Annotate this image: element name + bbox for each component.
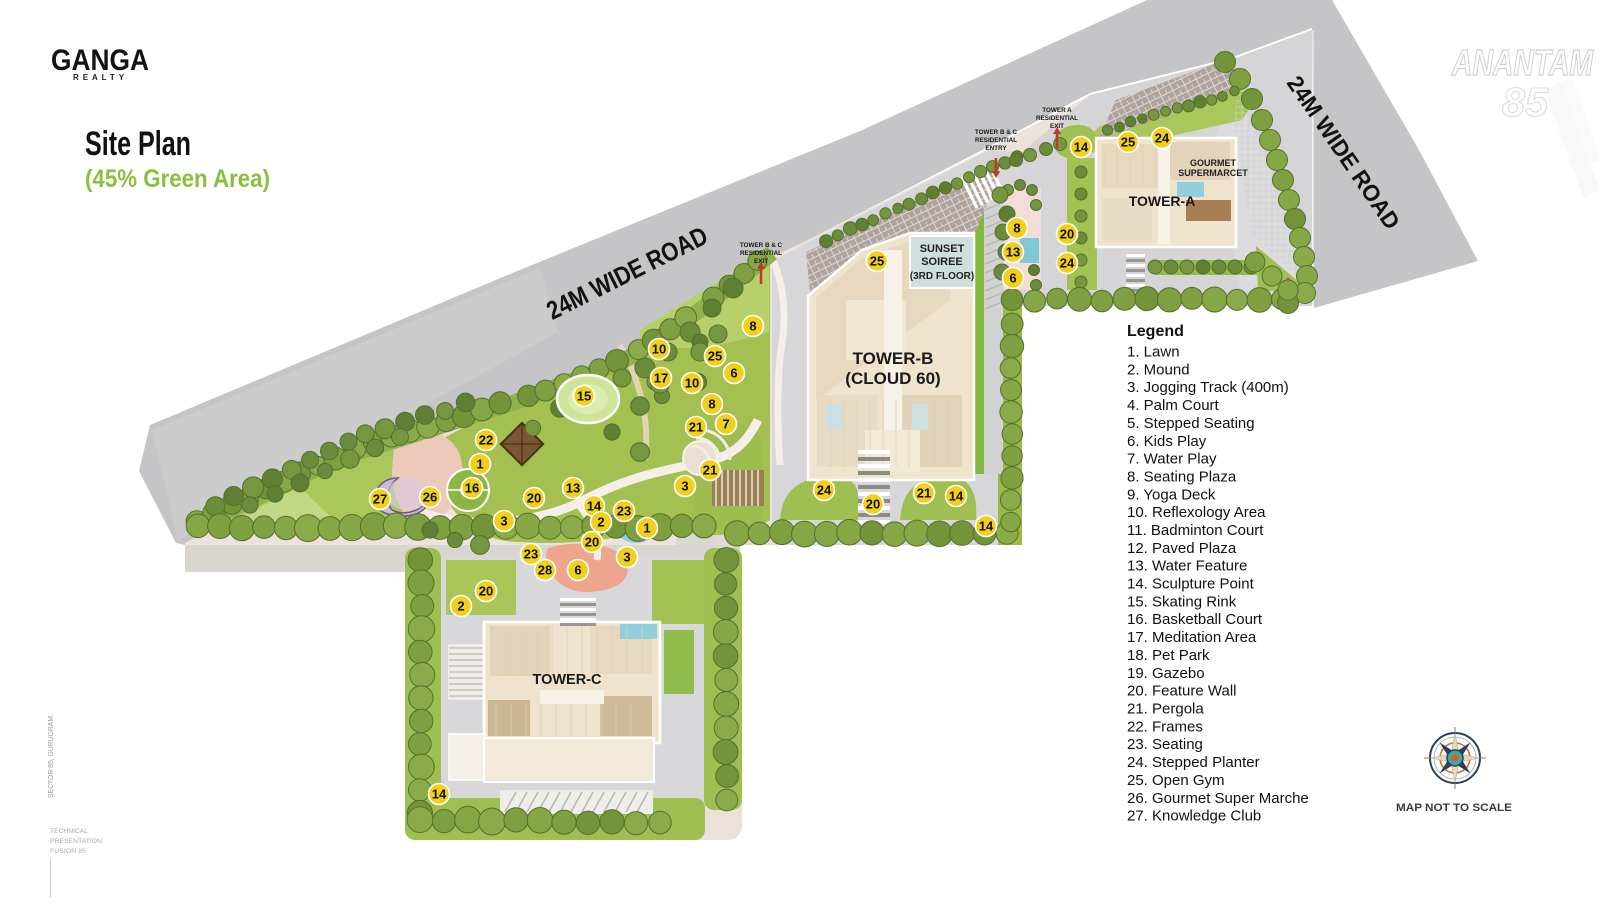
svg-text:Site Plan: Site Plan bbox=[85, 125, 191, 163]
svg-text:SOIREE: SOIREE bbox=[921, 256, 963, 268]
svg-text:TOWER A: TOWER A bbox=[1042, 107, 1072, 114]
svg-text:TOWER B & C: TOWER B & C bbox=[740, 242, 783, 249]
svg-text:8: 8 bbox=[708, 397, 715, 412]
svg-text:5. Stepped Seating: 5. Stepped Seating bbox=[1127, 415, 1255, 432]
svg-text:SUPERMARCET: SUPERMARCET bbox=[1178, 168, 1248, 178]
svg-text:6. Kids Play: 6. Kids Play bbox=[1127, 433, 1207, 450]
svg-text:14: 14 bbox=[1074, 140, 1089, 155]
svg-text:6: 6 bbox=[730, 366, 737, 381]
svg-text:MAP NOT TO SCALE: MAP NOT TO SCALE bbox=[1396, 802, 1512, 814]
svg-text:18. Pet Park: 18. Pet Park bbox=[1127, 647, 1210, 664]
svg-text:25: 25 bbox=[1121, 135, 1135, 150]
svg-text:8: 8 bbox=[749, 319, 756, 334]
svg-text:24: 24 bbox=[1060, 256, 1075, 271]
svg-text:17: 17 bbox=[654, 371, 668, 386]
svg-text:20: 20 bbox=[527, 491, 541, 506]
svg-text:8. Seating Plaza: 8. Seating Plaza bbox=[1127, 469, 1237, 486]
svg-text:15: 15 bbox=[577, 389, 591, 404]
svg-text:1: 1 bbox=[476, 457, 483, 472]
svg-text:19. Gazebo: 19. Gazebo bbox=[1127, 665, 1205, 682]
svg-text:TOWER B & C: TOWER B & C bbox=[975, 129, 1018, 136]
svg-text:9. Yoga Deck: 9. Yoga Deck bbox=[1127, 486, 1216, 503]
svg-text:12. Paved Plaza: 12. Paved Plaza bbox=[1127, 540, 1237, 557]
svg-text:23: 23 bbox=[617, 504, 631, 519]
svg-text:11. Badminton Court: 11. Badminton Court bbox=[1127, 522, 1264, 539]
svg-text:1. Lawn: 1. Lawn bbox=[1127, 344, 1180, 361]
svg-text:(CLOUD 60): (CLOUD 60) bbox=[845, 369, 940, 388]
svg-text:23: 23 bbox=[524, 547, 538, 562]
svg-text:15. Skating Rink: 15. Skating Rink bbox=[1127, 593, 1237, 610]
svg-text:7: 7 bbox=[722, 417, 729, 432]
svg-text:27: 27 bbox=[373, 492, 387, 507]
svg-text:14: 14 bbox=[979, 519, 994, 534]
svg-text:23. Seating: 23. Seating bbox=[1127, 736, 1203, 753]
svg-text:(45% Green Area): (45% Green Area) bbox=[85, 165, 270, 193]
svg-text:TECHNICAL: TECHNICAL bbox=[50, 829, 89, 835]
svg-text:24: 24 bbox=[1155, 131, 1170, 146]
svg-text:REALTY: REALTY bbox=[73, 73, 128, 82]
svg-text:20. Feature Wall: 20. Feature Wall bbox=[1127, 683, 1237, 700]
svg-text:FUSION 85: FUSION 85 bbox=[50, 849, 87, 855]
svg-text:24: 24 bbox=[817, 483, 832, 498]
svg-text:13: 13 bbox=[1006, 245, 1020, 260]
svg-text:21: 21 bbox=[703, 463, 717, 478]
svg-text:26. Gourmet Super Marche: 26. Gourmet Super Marche bbox=[1127, 790, 1309, 807]
svg-text:7. Water Play: 7. Water Play bbox=[1127, 451, 1217, 468]
svg-text:6: 6 bbox=[574, 563, 581, 578]
svg-text:16: 16 bbox=[465, 481, 479, 496]
svg-text:TOWER-B: TOWER-B bbox=[853, 349, 934, 368]
svg-text:21: 21 bbox=[689, 420, 703, 435]
svg-text:TOWER-C: TOWER-C bbox=[532, 672, 602, 688]
svg-text:13: 13 bbox=[566, 481, 580, 496]
svg-text:26: 26 bbox=[423, 490, 437, 505]
svg-text:25. Open Gym: 25. Open Gym bbox=[1127, 772, 1225, 789]
svg-text:20: 20 bbox=[585, 535, 599, 550]
svg-text:13. Water Feature: 13. Water Feature bbox=[1127, 558, 1247, 575]
svg-text:16. Basketball Court: 16. Basketball Court bbox=[1127, 611, 1263, 628]
svg-text:ANANTAM: ANANTAM bbox=[1451, 42, 1594, 83]
svg-text:6: 6 bbox=[1009, 271, 1016, 286]
svg-text:3: 3 bbox=[500, 514, 507, 529]
svg-text:21: 21 bbox=[917, 486, 931, 501]
svg-text:14: 14 bbox=[432, 787, 447, 802]
svg-text:20: 20 bbox=[1060, 227, 1074, 242]
svg-text:TOWER-A: TOWER-A bbox=[1129, 193, 1196, 209]
svg-text:3: 3 bbox=[681, 479, 688, 494]
svg-text:Legend: Legend bbox=[1127, 323, 1184, 340]
svg-text:22: 22 bbox=[479, 433, 493, 448]
svg-text:21. Pergola: 21. Pergola bbox=[1127, 701, 1204, 718]
svg-text:22. Frames: 22. Frames bbox=[1127, 718, 1203, 735]
svg-text:28: 28 bbox=[538, 563, 552, 578]
svg-text:RESIDENTIAL: RESIDENTIAL bbox=[975, 137, 1017, 144]
svg-text:85: 85 bbox=[1502, 79, 1549, 125]
svg-text:3. Jogging Track (400m): 3. Jogging Track (400m) bbox=[1127, 379, 1289, 396]
svg-text:2. Mound: 2. Mound bbox=[1127, 361, 1190, 378]
svg-text:17. Meditation Area: 17. Meditation Area bbox=[1127, 629, 1257, 646]
svg-text:24. Stepped Planter: 24. Stepped Planter bbox=[1127, 754, 1260, 771]
svg-text:20: 20 bbox=[866, 497, 880, 512]
svg-text:10. Reflexology Area: 10. Reflexology Area bbox=[1127, 504, 1266, 521]
svg-text:ENTRY: ENTRY bbox=[985, 145, 1007, 152]
svg-text:2: 2 bbox=[597, 515, 604, 530]
svg-text:14. Sculpture Point: 14. Sculpture Point bbox=[1127, 576, 1255, 593]
svg-text:SUNSET: SUNSET bbox=[920, 243, 965, 255]
svg-text:2: 2 bbox=[457, 599, 464, 614]
svg-text:GOURMET: GOURMET bbox=[1190, 158, 1237, 168]
svg-text:14: 14 bbox=[949, 489, 964, 504]
svg-text:1: 1 bbox=[643, 521, 650, 536]
svg-text:10: 10 bbox=[652, 342, 666, 357]
svg-text:(3RD FLOOR): (3RD FLOOR) bbox=[910, 271, 974, 282]
svg-text:RESIDENTIAL: RESIDENTIAL bbox=[740, 250, 782, 257]
svg-text:10: 10 bbox=[685, 376, 699, 391]
svg-text:20: 20 bbox=[479, 584, 493, 599]
svg-text:3: 3 bbox=[623, 550, 630, 565]
svg-text:RESIDENTIAL: RESIDENTIAL bbox=[1036, 115, 1078, 122]
svg-text:25: 25 bbox=[708, 349, 722, 364]
svg-text:27. Knowledge Club: 27. Knowledge Club bbox=[1127, 808, 1261, 825]
svg-text:SECTOR 85, GURUGRAM: SECTOR 85, GURUGRAM bbox=[46, 716, 55, 798]
svg-text:PRESENTATION: PRESENTATION bbox=[50, 839, 102, 845]
svg-text:8: 8 bbox=[1013, 221, 1020, 236]
svg-text:25: 25 bbox=[870, 254, 884, 269]
svg-text:4. Palm Court: 4. Palm Court bbox=[1127, 397, 1220, 414]
